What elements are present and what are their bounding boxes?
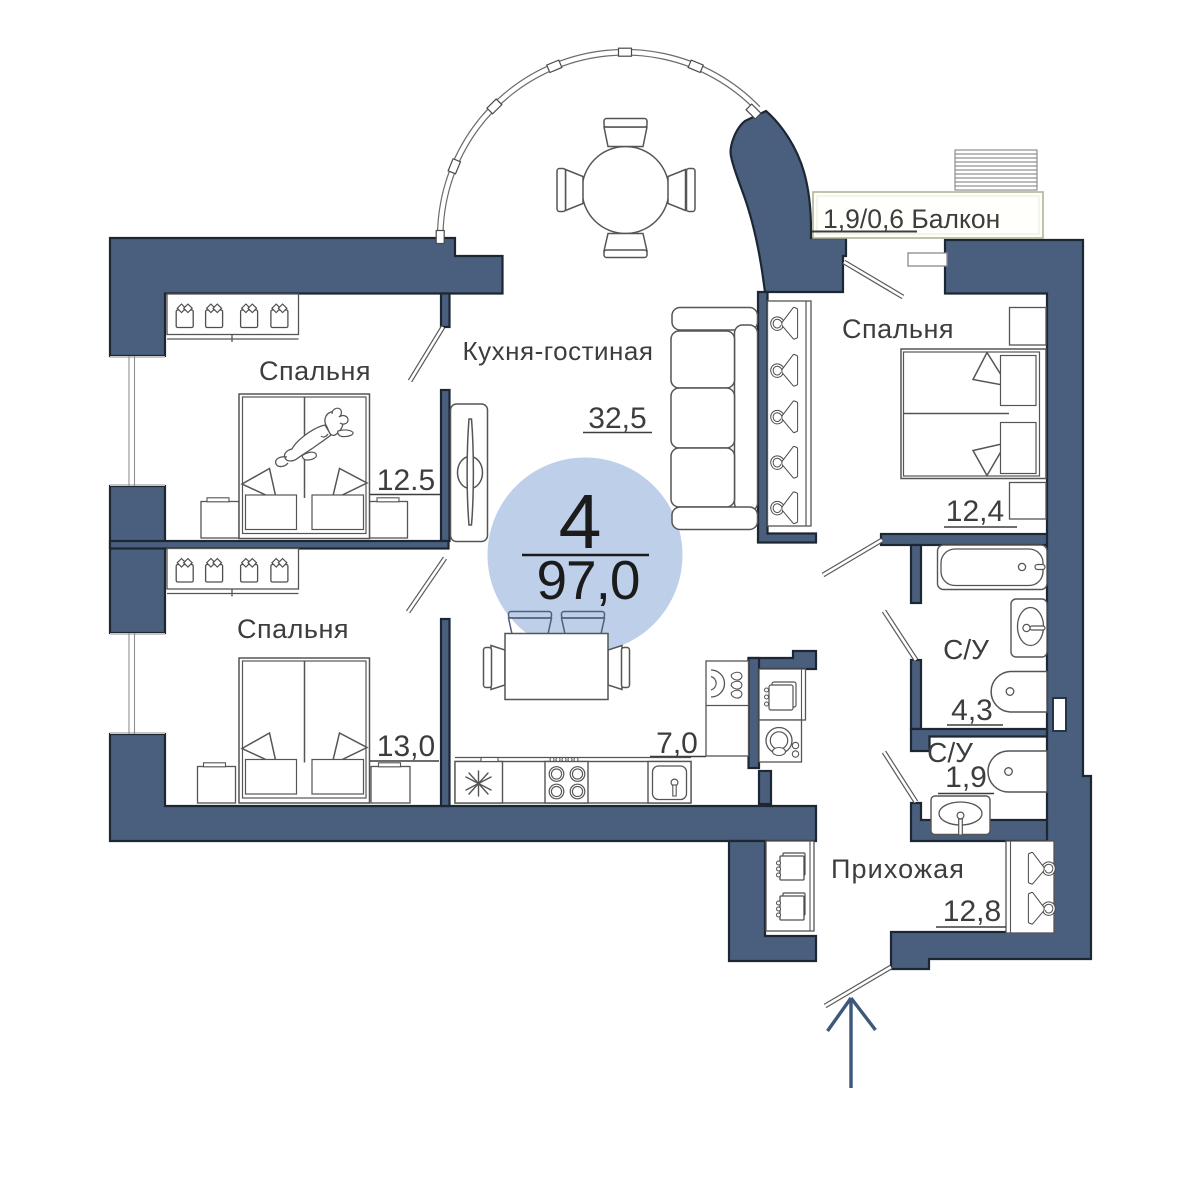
- svg-text:Спальня: Спальня: [237, 614, 349, 644]
- svg-text:12.5: 12.5: [377, 464, 435, 497]
- svg-text:Кухня-гостиная: Кухня-гостиная: [463, 336, 654, 366]
- svg-text:Спальня: Спальня: [842, 314, 954, 344]
- svg-text:7,0: 7,0: [656, 727, 698, 760]
- svg-text:Спальня: Спальня: [259, 356, 371, 386]
- svg-text:12,4: 12,4: [946, 495, 1004, 528]
- svg-text:97,0: 97,0: [536, 549, 639, 611]
- svg-text:С/У: С/У: [943, 634, 989, 665]
- svg-text:1,9/0,6 Балкон: 1,9/0,6 Балкон: [823, 204, 1000, 234]
- svg-text:1,9: 1,9: [945, 761, 987, 794]
- svg-text:12,8: 12,8: [943, 895, 1001, 928]
- svg-text:13,0: 13,0: [377, 730, 435, 763]
- svg-text:32,5: 32,5: [588, 402, 646, 435]
- svg-text:Прихожая: Прихожая: [831, 854, 965, 884]
- svg-text:4,3: 4,3: [951, 694, 993, 727]
